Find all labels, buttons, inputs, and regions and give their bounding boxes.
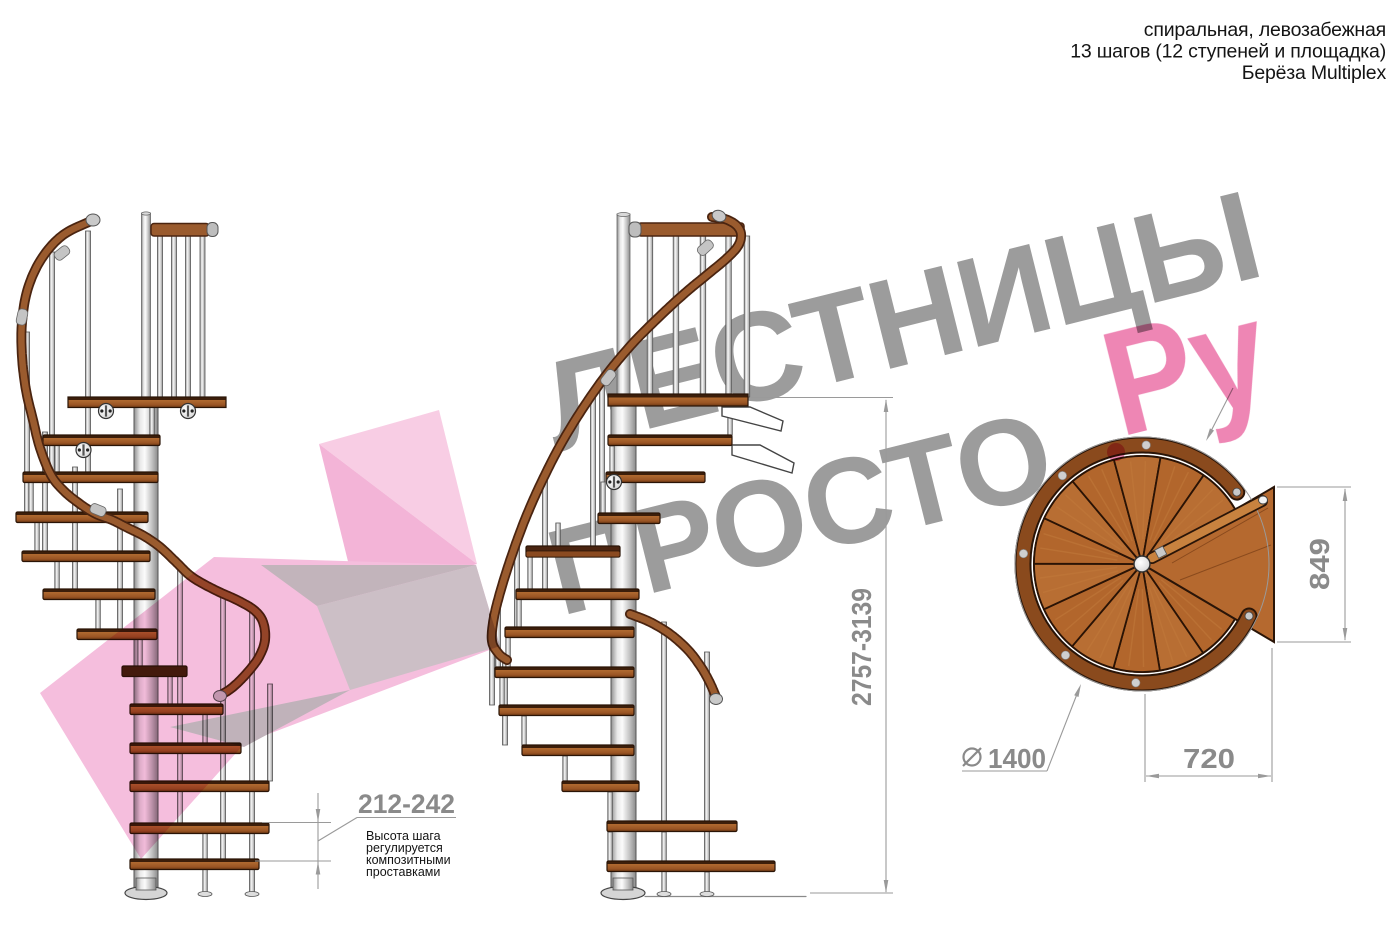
svg-text:849: 849: [1304, 538, 1335, 590]
svg-text:212-242: 212-242: [358, 789, 455, 819]
svg-text:спиральная, левозабежная: спиральная, левозабежная: [1144, 19, 1386, 41]
svg-text:720: 720: [1183, 743, 1235, 774]
svg-text:1400: 1400: [988, 743, 1046, 774]
svg-text:проставками: проставками: [366, 865, 440, 879]
svg-text:13 шагов (12 ступеней и площад: 13 шагов (12 ступеней и площадка): [1070, 41, 1386, 63]
svg-text:2757-3139: 2757-3139: [846, 588, 877, 706]
svg-text:Берёза Multiplex: Берёза Multiplex: [1242, 62, 1387, 84]
